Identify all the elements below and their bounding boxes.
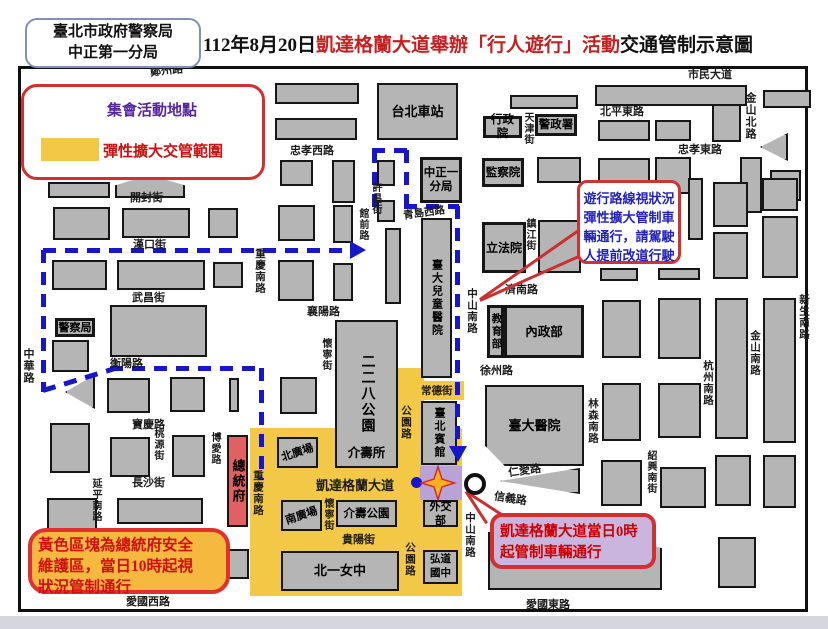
street-label-懷寧街: 懷寧街	[318, 338, 333, 371]
building-介壽公園: 介壽公園	[336, 500, 397, 527]
building-內政部: 內政部	[504, 305, 584, 358]
city-block	[712, 104, 741, 142]
building-中正一分局: 中正一分局	[420, 157, 462, 203]
street-label-金山北路: 金山北路	[742, 92, 758, 140]
street-label-桃源街: 桃源街	[150, 428, 165, 461]
city-block	[658, 268, 700, 280]
legend-zone-label: 彈性擴大交管範圍	[103, 140, 223, 161]
building-label: 行政院	[486, 113, 519, 141]
street-label-常德街: 常德街	[421, 383, 453, 398]
city-block	[713, 182, 748, 227]
building-label: 北一女中	[314, 564, 366, 578]
building-label: 外交部	[425, 500, 456, 528]
city-block	[117, 260, 205, 290]
page-edge	[0, 616, 828, 629]
city-block	[50, 423, 90, 473]
building-label: 北廣場	[280, 441, 316, 465]
building-label: 立法院	[486, 241, 522, 255]
building-label: 總統府	[231, 459, 245, 504]
street-label-金山南路: 金山南路	[747, 330, 762, 376]
route-arrow-down-icon	[449, 446, 467, 462]
street-label-中山南路: 中山南路	[464, 288, 479, 334]
city-block	[601, 460, 642, 506]
street-label-市民大道: 市民大道	[688, 66, 732, 82]
building-label: 弘道國中	[430, 553, 451, 581]
city-block	[715, 455, 751, 506]
city-block	[658, 383, 701, 438]
traffic-control-map-page: 臺北市政府警察局 中正第一分局 112年8月20日凱達格蘭大道舉辦「行人遊行」活…	[0, 0, 828, 629]
city-block	[602, 383, 641, 441]
street-label-忠孝東路: 忠孝東路	[678, 141, 722, 157]
city-block	[598, 120, 650, 141]
callout-line: 凱達格蘭大道當日0時	[500, 522, 646, 543]
roundabout-circle	[464, 473, 486, 495]
street-label-貴陽街: 貴陽街	[342, 531, 375, 547]
building-label: 南廣場	[284, 504, 320, 528]
building-label: 台北車站	[391, 105, 443, 119]
street-label-衡陽路: 衡陽路	[110, 355, 143, 371]
city-block	[280, 160, 313, 186]
building-label: 監察院	[486, 166, 521, 180]
building-label: 警政署	[539, 118, 574, 132]
title-date: 112年8月20日	[203, 35, 316, 56]
street-label-重慶南路: 重慶南路	[250, 470, 265, 516]
building-label: 中正一分局	[424, 166, 459, 194]
street-label-愛國東路: 愛國東路	[526, 596, 570, 612]
city-block	[602, 300, 641, 358]
callout-line: 起管制車輛通行	[500, 543, 646, 564]
city-block	[117, 498, 203, 524]
building-二二八公園: 二二八公園介壽所	[335, 320, 398, 468]
city-block	[278, 260, 314, 301]
route-segment	[41, 250, 46, 392]
city-block	[107, 378, 150, 413]
city-block	[110, 437, 150, 477]
page-title: 112年8月20日凱達格蘭大道舉辦「行人遊行」活動交通管制示意圖	[203, 30, 815, 57]
callout-line: 人提前改道行駛	[582, 246, 676, 265]
callout-line: 輛通行，請駕駛	[582, 227, 676, 246]
street-label-鎮江街: 鎮江街	[522, 218, 537, 251]
street-label-凱達格蘭大道: 凱達格蘭大道	[316, 475, 394, 494]
city-block	[208, 208, 238, 238]
city-block	[170, 377, 205, 412]
city-block	[510, 95, 578, 109]
building-label: 臺大兒童醫院	[430, 259, 444, 337]
callout-line: 黃色區塊為總統府安全	[38, 535, 220, 556]
street-label-博愛路: 博愛路	[207, 432, 222, 465]
city-block	[763, 298, 796, 443]
city-block	[280, 377, 317, 414]
city-block	[122, 208, 190, 238]
building-label: 臺北賓館	[432, 407, 446, 459]
city-block	[275, 83, 359, 104]
building-南廣場: 南廣場	[281, 500, 322, 531]
city-block	[333, 263, 353, 301]
title-event: 凱達格蘭大道舉辦「行人遊行」活動	[316, 35, 620, 56]
city-block	[333, 205, 353, 243]
street-label-公園路: 公園路	[402, 542, 417, 577]
callout-route-note: 遊行路線視狀況彈性擴大管制車輛通行，請駕駛人提前改道行駛	[577, 180, 681, 264]
city-block	[660, 467, 706, 508]
building-台北車站: 台北車站	[377, 83, 458, 140]
street-label-館前路: 館前路	[355, 208, 370, 241]
city-block	[713, 232, 748, 279]
street-label-徐州路: 徐州路	[480, 362, 513, 378]
building-臺大兒童醫院: 臺大兒童醫院	[421, 218, 452, 378]
city-block	[385, 228, 401, 304]
route-endpoint-dot	[411, 477, 422, 488]
callout-line: 狀況管制通行	[38, 577, 220, 598]
city-block	[762, 216, 798, 278]
city-block	[52, 340, 89, 372]
building-臺大醫院: 臺大醫院	[485, 385, 584, 466]
city-block	[52, 260, 107, 290]
building-sub-label: 介壽所	[337, 446, 396, 460]
callout-line: 遊行路線視狀況	[582, 189, 676, 208]
street-label-懷寧街: 懷寧街	[320, 498, 335, 531]
agency-name-line1: 臺北市政府警察局	[53, 22, 173, 43]
building-北一女中: 北一女中	[281, 551, 399, 591]
street-label-開封街: 開封街	[130, 189, 163, 205]
city-block	[48, 182, 110, 198]
callout-yellow-zone-note: 黃色區塊為總統府安全維護區，當日10時起視狀況管制通行	[28, 528, 230, 594]
street-label-長沙街: 長沙街	[132, 474, 165, 490]
building-label: 二二八公園	[360, 354, 374, 434]
building-label: 警察局	[59, 321, 92, 335]
street-label-許昌街: 許昌街	[368, 182, 383, 215]
city-block	[762, 178, 798, 211]
route-segment	[404, 150, 409, 206]
legend-yellow-swatch	[41, 138, 99, 161]
city-block	[172, 435, 205, 477]
street-label-紹興南街: 紹興南街	[643, 450, 658, 494]
city-block	[658, 298, 701, 359]
city-block	[763, 455, 796, 508]
street-label-林森南路: 林森南路	[585, 398, 600, 444]
city-block	[688, 178, 703, 240]
city-block	[655, 120, 691, 141]
city-block	[718, 537, 756, 588]
street-label-天津街: 天津街	[520, 112, 535, 145]
street-label-北平東路: 北平東路	[600, 103, 644, 119]
route-segment	[259, 368, 264, 480]
building-警察局: 警察局	[55, 318, 95, 337]
agency-name-line2: 中正第一分局	[68, 43, 158, 64]
city-block	[763, 90, 811, 108]
street-label-杭州南路: 杭州南路	[700, 360, 715, 406]
building-監察院: 監察院	[482, 158, 524, 187]
route-segment	[455, 206, 460, 448]
callout-line: 彈性擴大管制車	[582, 208, 676, 227]
street-label-武昌街: 武昌街	[132, 289, 165, 305]
city-block	[332, 160, 355, 203]
building-label: 介壽公園	[344, 507, 390, 521]
city-block	[53, 207, 110, 240]
street-label-襄陽路: 襄陽路	[307, 303, 340, 319]
building-北廣場: 北廣場	[277, 437, 318, 468]
building-警政署: 警政署	[535, 114, 577, 136]
building-label: 內政部	[525, 325, 563, 339]
building-總統府: 總統府	[227, 435, 248, 527]
street-label-忠孝西路: 忠孝西路	[290, 142, 334, 158]
city-block	[278, 205, 315, 241]
city-block	[715, 298, 748, 439]
route-segment	[43, 248, 353, 253]
legend-assembly-label: 集會活動地點	[107, 99, 197, 120]
street-label-中山南路: 中山南路	[462, 512, 477, 558]
title-suffix: 交通管制示意圖	[620, 35, 753, 56]
street-label-重慶南路: 重慶南路	[252, 248, 267, 294]
building-label: 教育部	[489, 313, 503, 351]
street-label-漢口街: 漢口街	[133, 236, 166, 252]
city-block	[229, 378, 239, 412]
building-弘道國中: 弘道國中	[423, 550, 458, 584]
route-arrow-right-icon	[350, 241, 366, 259]
building-行政院: 行政院	[483, 116, 522, 138]
city-block	[213, 262, 243, 288]
street-label-新生南路: 新生南路	[796, 294, 811, 340]
callout-line: 維護區，當日10時起視	[38, 556, 220, 577]
city-block	[275, 118, 357, 140]
city-block	[537, 157, 581, 183]
street-label-延平南路: 延平南路	[88, 478, 103, 522]
street-label-公園路: 公園路	[398, 405, 413, 440]
building-教育部: 教育部	[487, 305, 504, 358]
street-label-中華路: 中華路	[20, 348, 36, 384]
building-label: 臺大醫院	[508, 419, 560, 433]
city-block	[600, 268, 638, 281]
building-外交部: 外交部	[423, 500, 458, 527]
callout-kdg-closure-note: 凱達格蘭大道當日0時起管制車輛通行	[490, 513, 656, 569]
building-立法院: 立法院	[482, 222, 526, 273]
route-segment	[372, 148, 409, 153]
city-block	[110, 305, 207, 357]
agency-header-box: 臺北市政府警察局 中正第一分局	[25, 18, 201, 68]
